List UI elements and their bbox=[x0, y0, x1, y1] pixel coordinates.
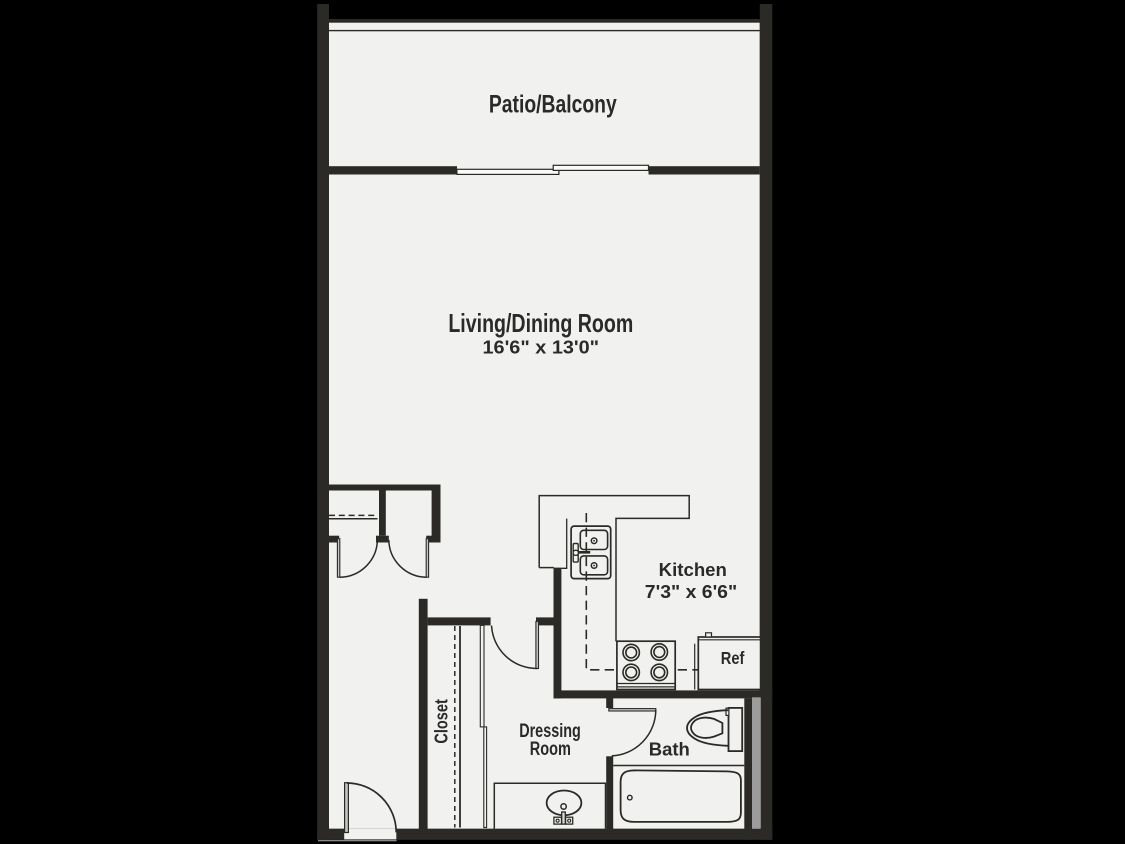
svg-text:Kitchen: Kitchen bbox=[659, 559, 727, 580]
svg-text:Ref: Ref bbox=[721, 648, 745, 668]
svg-text:Room: Room bbox=[530, 739, 571, 760]
svg-text:7'3" x 6'6": 7'3" x 6'6" bbox=[645, 581, 737, 602]
svg-text:Living/Dining Room: Living/Dining Room bbox=[448, 308, 633, 338]
svg-text:Patio/Balcony: Patio/Balcony bbox=[489, 90, 617, 118]
svg-text:16'6" x 13'0": 16'6" x 13'0" bbox=[483, 336, 600, 357]
svg-text:Closet: Closet bbox=[430, 699, 451, 743]
svg-text:Bath: Bath bbox=[649, 739, 690, 760]
